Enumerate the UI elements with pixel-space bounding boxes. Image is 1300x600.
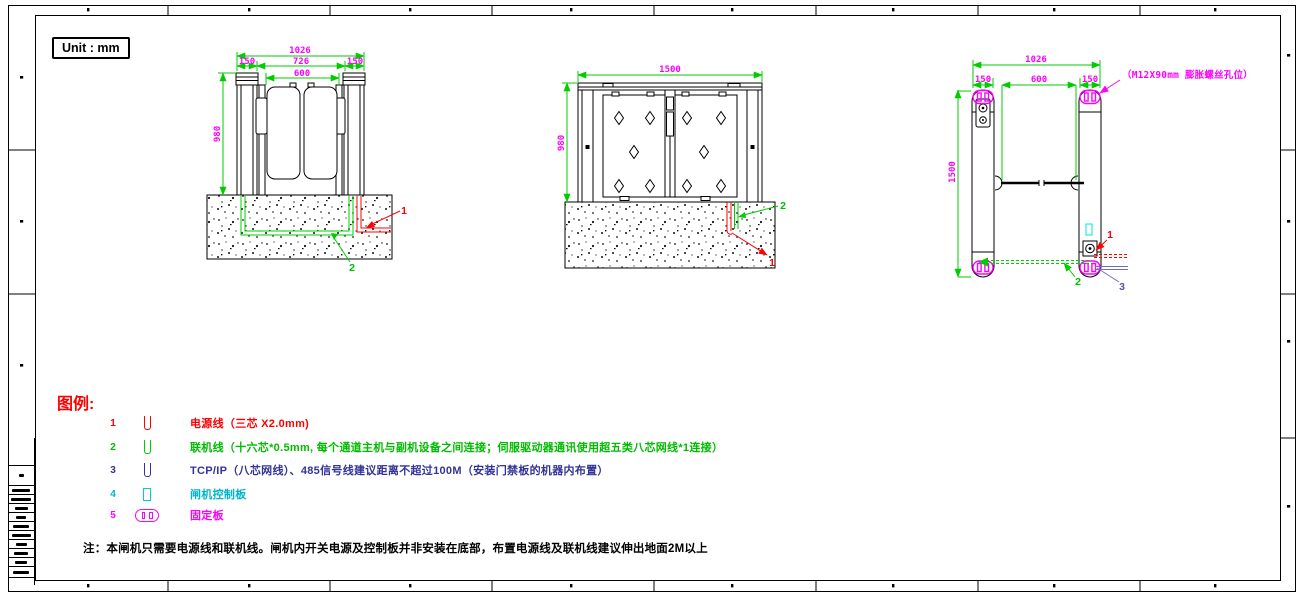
title-block: [8, 438, 35, 585]
dim-label: 1026: [289, 46, 311, 56]
plan-swing-arms: [995, 176, 1084, 190]
rear-view: 1 2 1500 980: [557, 65, 786, 269]
dim-label: 980: [557, 135, 567, 151]
legend-label: 联机线（十六芯*0.5mm, 每个通道主机与副机设备之间连接；伺服驱动器通讯使用…: [190, 439, 723, 455]
front-callout-network: 2: [349, 262, 355, 274]
network-cable-symbol: [144, 440, 151, 454]
legend-number: 3: [105, 465, 121, 476]
legend-label: 闸机控制板: [190, 486, 247, 502]
legend-row-tcpip: 3 TCP/IP（八芯网线）、485信号线建议距离不超过100M（安装门禁板的机…: [105, 462, 609, 478]
legend-row-power: 1 电源线（三芯 X2.0mm): [105, 415, 309, 431]
rear-callout-network: 2: [780, 200, 786, 212]
legend-number: 2: [105, 442, 121, 453]
front-right-wing: [304, 87, 337, 179]
bolt-note-leader: [1100, 80, 1120, 93]
legend-number: 1: [105, 418, 121, 429]
dim-label: 600: [294, 69, 310, 79]
control-board-symbol: [143, 488, 151, 501]
plan-callout-tcpip: 3: [1119, 281, 1125, 293]
front-foundation: [207, 195, 392, 259]
dim-label: 150: [347, 57, 363, 67]
power-cable-symbol: [144, 416, 151, 430]
legend-row-network: 2 联机线（十六芯*0.5mm, 每个通道主机与副机设备之间连接；伺服驱动器通讯…: [105, 439, 723, 455]
legend-title: 图例:: [57, 390, 94, 414]
dim-label: 1026: [1025, 55, 1047, 65]
legend-row-control-board: 4 闸机控制板: [105, 486, 247, 502]
legend-number: 4: [105, 489, 121, 500]
plan-view: 1 2 3 1026 150 600 150 1500 （M1: [948, 55, 1253, 293]
dim-label: 150: [1082, 75, 1098, 85]
legend-number: 5: [105, 510, 121, 521]
plan-network-cable: [978, 258, 1092, 278]
drawing-sheet: 1 2 1026 150 726 150 600 980: [0, 0, 1300, 600]
dim-label: 980: [213, 126, 223, 142]
tcpip-cable-symbol: [144, 463, 151, 477]
installation-note: 注：本闸机只需要电源线和联机线。闸机内开关电源及控制板并非安装在底部，布置电源线…: [83, 540, 708, 556]
plan-junction-box: [1083, 241, 1097, 256]
dim-label: 600: [1031, 75, 1047, 85]
dim-label: 150: [239, 57, 255, 67]
bolt-note-label: （M12X90mm 膨胀螺丝孔位）: [1122, 69, 1253, 81]
front-left-wing: [267, 87, 300, 179]
legend-label: 电源线（三芯 X2.0mm): [190, 415, 309, 431]
unit-label: Unit : mm: [62, 41, 120, 55]
rear-foundation: [565, 202, 775, 268]
rear-cabinet: [578, 83, 762, 202]
rear-callout-power: 1: [769, 257, 775, 269]
front-view: 1 2 1026 150 726 150 600 980: [207, 46, 407, 274]
fixing-plate-symbol: [135, 509, 159, 522]
dim-label: 150: [975, 75, 991, 85]
unit-box: Unit : mm: [52, 37, 130, 59]
legend-label: TCP/IP（八芯网线）、485信号线建议距离不超过100M（安装门禁板的机器内…: [190, 462, 609, 478]
front-cabinet: [236, 73, 365, 195]
dim-label: 726: [293, 57, 309, 67]
dim-label: 1500: [659, 65, 681, 75]
legend-row-fixing-plate: 5 固定板: [105, 507, 224, 523]
dim-label: 1500: [948, 161, 958, 183]
plan-callout-network: 2: [1075, 276, 1081, 288]
front-callout-power: 1: [401, 205, 407, 217]
plan-callout-power: 1: [1107, 229, 1113, 241]
legend-label: 固定板: [190, 507, 224, 523]
